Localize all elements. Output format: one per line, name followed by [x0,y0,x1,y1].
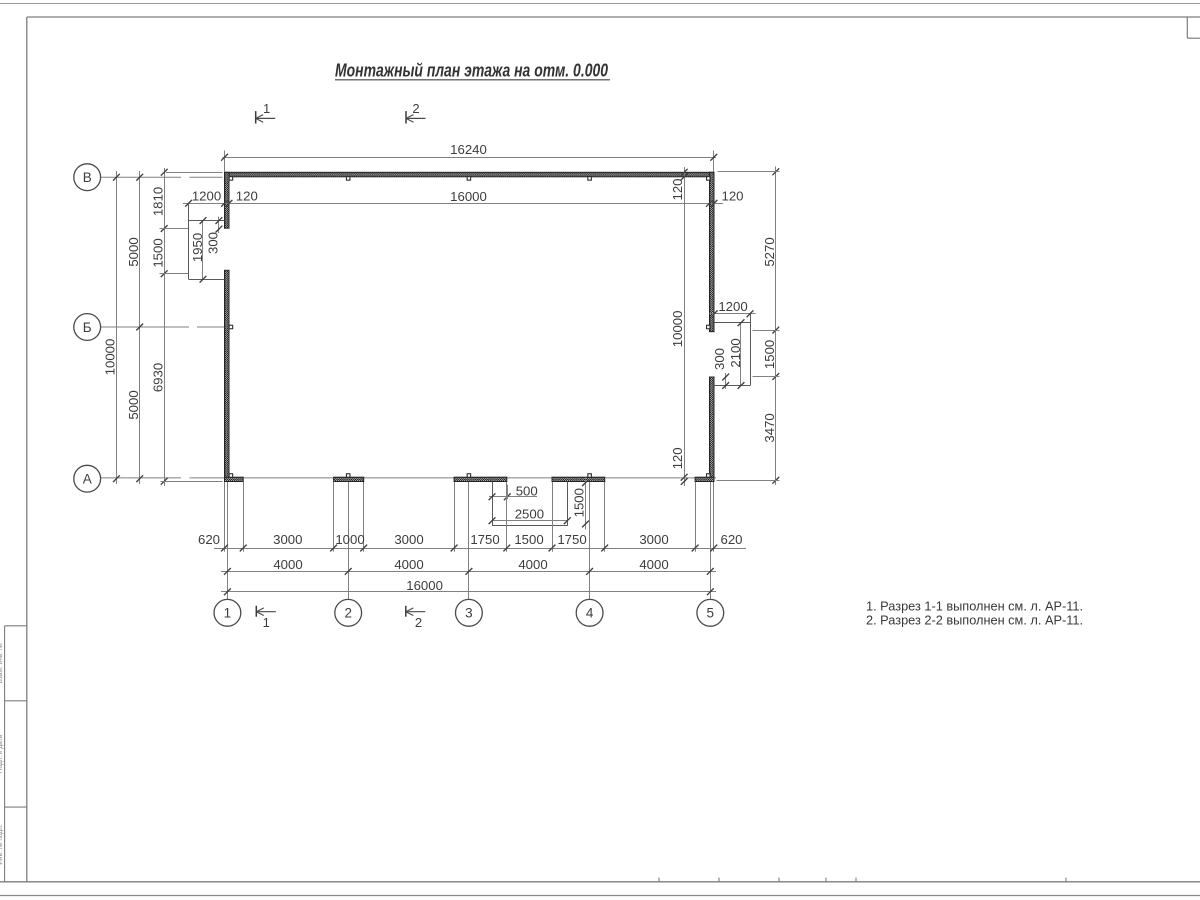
svg-text:1200: 1200 [192,189,221,204]
svg-text:16240: 16240 [450,142,487,157]
svg-text:1. Разрез 1-1 выполнен см. л.: 1. Разрез 1-1 выполнен см. л. АР-11. [866,599,1083,614]
svg-text:120: 120 [670,178,685,200]
svg-text:Инв. № подл.: Инв. № подл. [0,824,4,865]
svg-text:300: 300 [206,232,221,254]
svg-text:1500: 1500 [514,532,543,547]
svg-text:120: 120 [670,447,685,469]
svg-text:500: 500 [516,483,538,498]
svg-text:2: 2 [412,101,419,116]
svg-text:2. Разрез 2-2 выполнен см. л.: 2. Разрез 2-2 выполнен см. л. АР-11. [866,613,1083,628]
svg-text:5000: 5000 [126,237,141,266]
svg-text:2500: 2500 [515,507,544,522]
svg-text:1: 1 [224,606,232,621]
svg-text:1750: 1750 [470,532,499,547]
svg-text:620: 620 [198,532,220,547]
svg-text:4000: 4000 [273,557,302,572]
svg-text:3000: 3000 [394,532,423,547]
svg-text:10000: 10000 [103,339,118,376]
svg-text:16000: 16000 [406,578,443,593]
svg-text:Монтажный план этажа на отм. 0: Монтажный план этажа на отм. 0.000 [335,61,608,81]
svg-text:2: 2 [344,606,352,621]
svg-text:3000: 3000 [273,532,302,547]
svg-text:1000: 1000 [335,532,364,547]
svg-text:5270: 5270 [762,237,777,266]
svg-text:3000: 3000 [639,532,668,547]
svg-text:3470: 3470 [762,413,777,442]
svg-text:300: 300 [712,348,727,370]
svg-text:4: 4 [586,606,594,621]
svg-text:4000: 4000 [639,557,668,572]
svg-text:16000: 16000 [450,189,487,204]
svg-text:В: В [83,170,92,185]
svg-text:1500: 1500 [151,238,166,267]
svg-text:1: 1 [263,615,270,630]
svg-text:1750: 1750 [557,532,586,547]
svg-text:1500: 1500 [572,488,587,517]
svg-text:1950: 1950 [190,233,205,262]
svg-text:А: А [83,472,92,487]
svg-text:120: 120 [721,189,743,204]
svg-text:6930: 6930 [151,363,166,392]
svg-text:10000: 10000 [670,311,685,348]
svg-text:5000: 5000 [126,390,141,419]
svg-text:1200: 1200 [718,299,747,314]
svg-text:5: 5 [707,606,715,621]
svg-text:Подп. и дата: Подп. и дата [0,734,4,773]
svg-text:4000: 4000 [518,557,547,572]
svg-text:2100: 2100 [728,338,743,367]
svg-text:1500: 1500 [762,340,777,369]
svg-text:2: 2 [415,615,422,630]
svg-text:3: 3 [465,606,473,621]
svg-text:Взам. инв. №: Взам. инв. № [0,643,4,683]
svg-text:1810: 1810 [151,187,166,216]
svg-text:1: 1 [263,101,270,116]
svg-text:4000: 4000 [394,557,423,572]
svg-text:120: 120 [236,189,258,204]
svg-text:Б: Б [83,320,92,335]
svg-text:620: 620 [720,532,742,547]
